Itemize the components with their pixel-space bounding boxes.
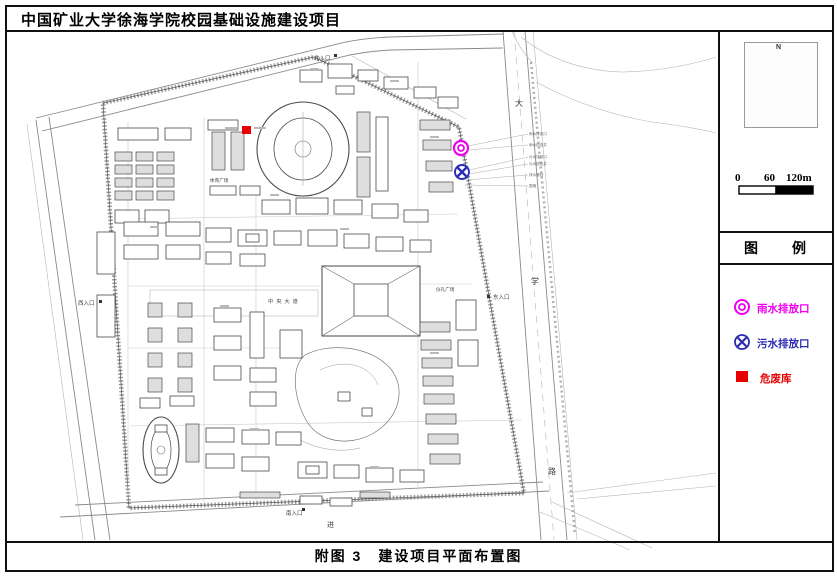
legend-label-rainwater: 雨水排放口 xyxy=(757,301,810,316)
legend-label-sewage: 污水排放口 xyxy=(757,336,810,351)
title-divider xyxy=(5,30,832,32)
scale-tick-0: 0 xyxy=(735,172,741,184)
legend-label-hazard: 危废库 xyxy=(760,371,792,386)
north-label: N xyxy=(776,44,781,51)
page-title: 中国矿业大学徐海学院校园基础设施建设项目 xyxy=(21,9,341,30)
scale-tick-120: 120m xyxy=(786,172,812,184)
figure-caption: 附图 3 建设项目平面布置图 xyxy=(0,546,837,566)
legend-box-bottom-line xyxy=(718,263,832,265)
legend-title: 图 例 xyxy=(718,238,832,258)
legend-box-top-line xyxy=(718,231,832,233)
compass-box xyxy=(744,42,818,128)
scale-tick-60: 60 xyxy=(764,172,775,184)
page-border xyxy=(5,5,834,572)
caption-divider xyxy=(5,541,832,543)
sidebar-divider xyxy=(718,30,720,541)
